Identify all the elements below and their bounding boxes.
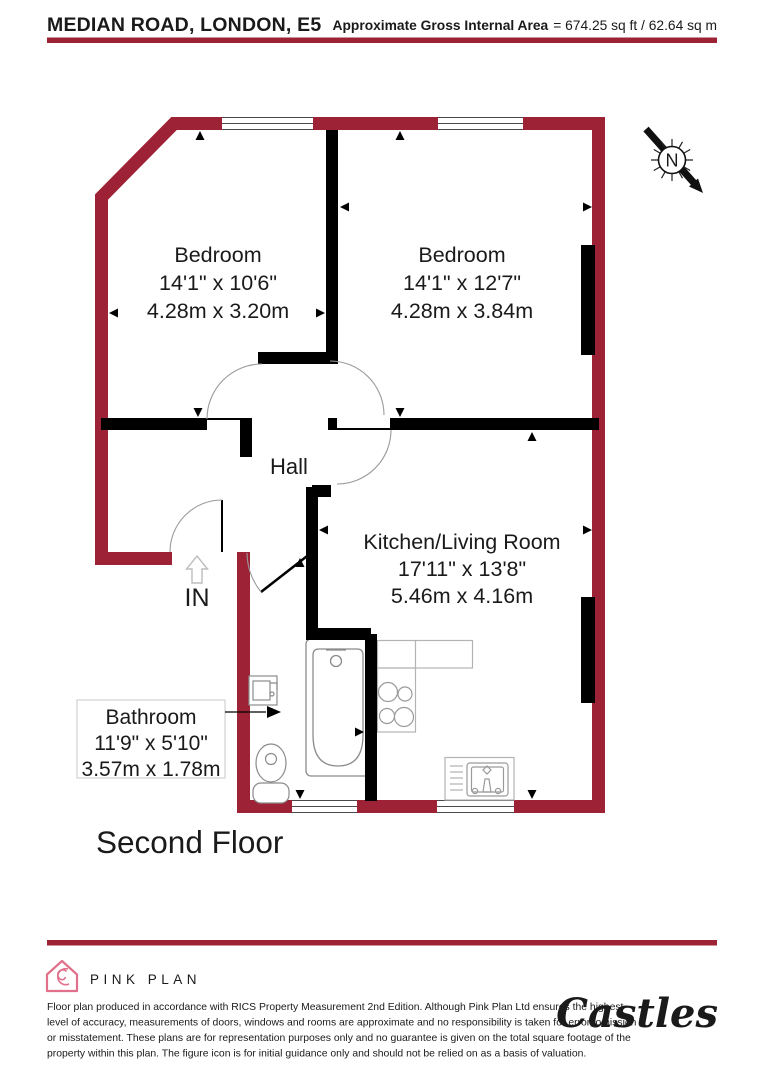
area-label: Approximate Gross Internal Area (333, 18, 549, 33)
pinkplan-logo-icon (47, 961, 77, 991)
bedroom2-name: Bedroom (418, 243, 505, 267)
chimney-breast-bedroom2 (581, 245, 595, 355)
page-title: MEDIAN ROAD, LONDON, E5 (47, 14, 321, 36)
room-label-bedroom2: Bedroom 14'1" x 12'7" 4.28m x 3.84m (391, 243, 533, 323)
pinkplan-logo-text: PINK PLAN (90, 972, 201, 987)
disclaimer-line-4: property within this plan. The figure ic… (47, 1049, 586, 1060)
room-label-kitchen: Kitchen/Living Room 17'11" x 13'8" 5.46m… (363, 530, 560, 608)
kitchen-sink (467, 763, 508, 796)
floorplan-page: MEDIAN ROAD, LONDON, E5 Approximate Gros… (0, 0, 764, 1080)
kitchen-metric: 5.46m x 4.16m (391, 584, 533, 608)
north-compass-icon: N (646, 129, 703, 193)
disclaimer-line-2: level of accuracy, measurements of doors… (47, 1018, 637, 1029)
toilet (253, 744, 289, 803)
disclaimer-line-1: Floor plan produced in accordance with R… (47, 1002, 624, 1013)
bathroom-leader-arrow (267, 706, 281, 718)
bathroom-imperial: 11'9" x 5'10" (94, 732, 208, 755)
bedroom1-imperial: 14'1" x 10'6" (159, 271, 277, 295)
entrance-arrow-icon (187, 556, 208, 583)
entrance-label: IN (185, 584, 210, 612)
gross-internal-area: Approximate Gross Internal Area= 674.25 … (333, 18, 717, 33)
floor-label: Second Floor (96, 824, 283, 860)
area-value: = 674.25 sq ft / 62.64 sq m (553, 18, 717, 33)
chimney-breast-kitchen (581, 597, 595, 703)
castles-logo: Castles (556, 990, 718, 1037)
hob-burners (379, 683, 414, 727)
hall-label: Hall (270, 454, 308, 479)
footer-rule (47, 940, 717, 946)
bedroom1-metric: 4.28m x 3.20m (147, 299, 289, 323)
bedroom2-metric: 4.28m x 3.84m (391, 299, 533, 323)
window-bedroom1 (222, 117, 313, 131)
floorplan-canvas: MEDIAN ROAD, LONDON, E5 Approximate Gros… (0, 0, 764, 1080)
bedroom1-name: Bedroom (174, 243, 261, 267)
kitchen-name: Kitchen/Living Room (363, 530, 560, 554)
compass-north-letter: N (666, 151, 679, 171)
disclaimer-text: Floor plan produced in accordance with R… (47, 1002, 637, 1060)
bathroom-name: Bathroom (105, 706, 196, 729)
disclaimer-line-3: or misstatement. These plans are for rep… (47, 1033, 631, 1044)
basin (249, 676, 277, 705)
bathroom-callout: Bathroom 11'9" x 5'10" 3.57m x 1.78m (77, 700, 281, 781)
bedroom2-imperial: 14'1" x 12'7" (403, 271, 521, 295)
window-kitchen (437, 800, 514, 814)
header-rule (47, 38, 717, 44)
bathtub (306, 639, 370, 776)
window-bedroom2 (438, 117, 523, 131)
room-label-bedroom1: Bedroom 14'1" x 10'6" 4.28m x 3.20m (147, 243, 289, 323)
kitchen-imperial: 17'11" x 13'8" (398, 557, 526, 581)
bathroom-metric: 3.57m x 1.78m (82, 758, 221, 781)
window-bathroom (292, 800, 357, 814)
